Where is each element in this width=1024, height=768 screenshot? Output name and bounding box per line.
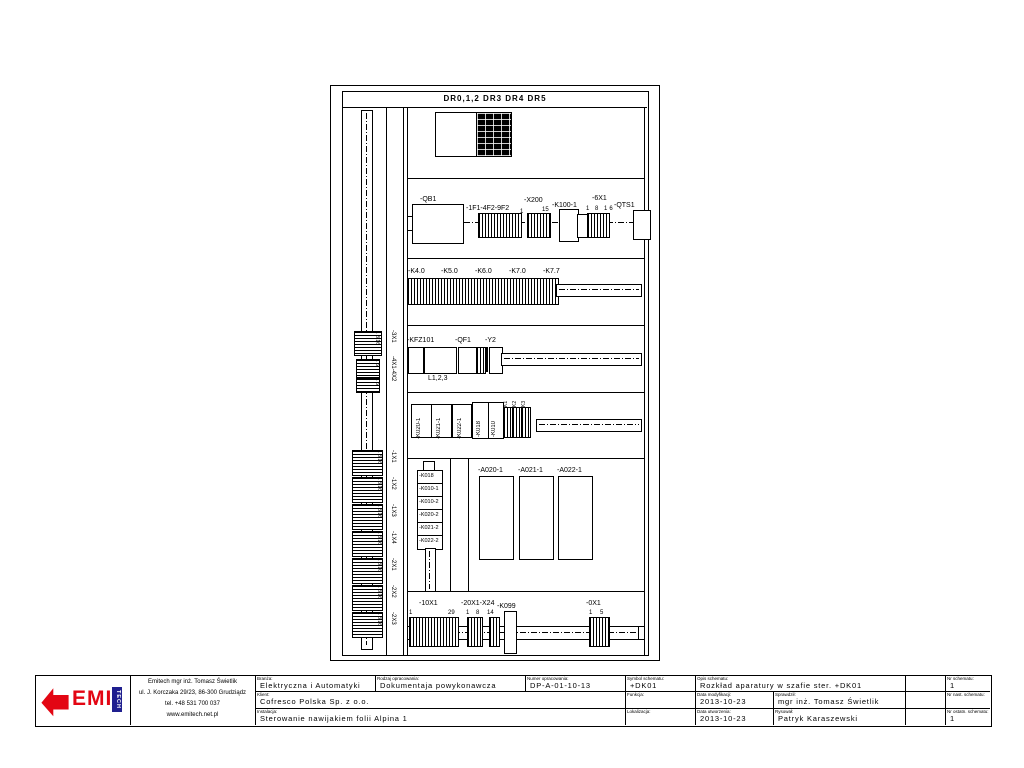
divider-line: [525, 675, 526, 691]
device-k100: [559, 209, 579, 242]
terminal-label-2x3: -2X3: [390, 612, 396, 638]
field-value-nr-ostatn-schematu: 1: [950, 715, 955, 723]
divider-line: [255, 708, 990, 709]
field-value-data-modyfikacji: 2013-10-23: [700, 698, 746, 706]
divider-line: [905, 675, 906, 725]
terminal-number: 1: [409, 610, 412, 616]
drive-label-a022-1: -A022-1: [557, 467, 582, 474]
device-label-x200: -X200: [524, 197, 543, 204]
divider-line: [407, 458, 644, 459]
terminal-number: 1: [466, 610, 469, 616]
emitech-logo-arrow-icon: [38, 684, 72, 718]
company-address: Emitech mgr inż. Tomasz Świetlik ul. J. …: [132, 677, 253, 721]
arrow-icon: [38, 684, 72, 718]
relay-small-3: [521, 407, 531, 438]
device-label-small-1: K1: [504, 395, 509, 407]
stack-label-k018: -K018: [419, 474, 434, 480]
stack-label-k020-2: -K020-2: [419, 513, 439, 519]
rail-header-label: DR0,1,2 DR3 DR4 DR5: [343, 95, 647, 103]
stack-label-k022-2: -K022-2: [419, 539, 439, 545]
divider-line: [407, 591, 644, 592]
device-label-fuses: -1F1-4F2-9F2: [466, 205, 509, 212]
rail-end-stub: [638, 626, 645, 640]
terminal-label-2x1: -2X1: [390, 558, 396, 584]
device-label-10x1: -10X1: [419, 600, 438, 607]
device-label-k021-1: -K021-1: [436, 393, 442, 439]
divider-line: [407, 258, 644, 259]
device-label-qf1: -QF1: [455, 337, 471, 344]
terminal-label-1x3: -1X3: [390, 504, 396, 530]
terminal-block-x200: [527, 213, 551, 238]
field-value-data-utworzenia: 2013-10-23: [700, 715, 746, 723]
divider-line: [407, 392, 644, 393]
mounting-rail: [536, 419, 642, 432]
device-label-6x1: -6X1: [592, 195, 607, 202]
divider-line: [945, 675, 946, 725]
terminal-block-x24: [489, 617, 500, 647]
device-label-k50: -K5.0: [441, 268, 458, 275]
terminal-block-10x1: [409, 617, 459, 647]
divider-line: [403, 107, 404, 655]
divider-line: [255, 675, 256, 725]
company-phone: tel. +48 531 700 037: [132, 699, 253, 710]
terminal-numbers: 1 8 16: [376, 612, 381, 637]
relay-bank: [407, 278, 559, 305]
rail-centerline: [504, 358, 639, 359]
device-label-k022-1: -K022-1: [457, 393, 463, 439]
rail-centerline: [429, 551, 430, 589]
device-label-k018: -K018: [476, 397, 482, 437]
mounting-rail: [501, 353, 642, 366]
stack-label-k010-1: -K010-1: [419, 487, 439, 493]
terminal-label-4x1-4x2: -4X1-4X2: [390, 356, 396, 428]
rail-centerline: [559, 289, 639, 290]
stack-label-k010-2: -K010-2: [419, 500, 439, 506]
device-label-kfz101: -KFZ101: [407, 337, 434, 344]
mounting-rail: [556, 284, 642, 297]
device-qb1: [412, 204, 464, 244]
terminal-label-1x1: -1X1: [390, 450, 396, 476]
terminal-numbers: 1 8 16: [376, 585, 381, 610]
divider-line: [343, 107, 647, 108]
field-value-rodzaj: Dokumentaja powykonawcza: [380, 682, 496, 690]
terminal-number: 1: [589, 610, 592, 616]
terminal-number: 14: [487, 610, 494, 616]
emitech-logo-tech-text: TECH: [112, 687, 122, 712]
device-k099: [504, 611, 517, 654]
divider-line: [386, 107, 387, 655]
field-value-nr-schematu: 1: [950, 682, 955, 690]
terminal-label-1x4: -1X4: [390, 531, 396, 557]
divider-line: [407, 107, 408, 655]
terminal-numbers: 1 6: [374, 378, 379, 391]
device-label-k020-1: -K020-1: [416, 393, 422, 439]
device-label-small-2: K2: [513, 395, 518, 407]
terminal-number: 5: [600, 610, 603, 616]
field-value-instalacja: Sterowanie nawijakiem folii Alpina 1: [260, 715, 408, 723]
company-website: www.emitech.net.pl: [132, 710, 253, 721]
field-label-lokalizacja: Lokalizacja:: [627, 710, 651, 715]
company-name: Emitech mgr inż. Tomasz Świetlik: [132, 677, 253, 688]
device-label-small-3: K3: [522, 395, 527, 407]
divider-line: [407, 325, 644, 326]
device-label-qb1: -QB1: [420, 196, 436, 203]
terminal-numbers: 1 8 16: [376, 504, 381, 529]
divider-line: [695, 675, 696, 725]
field-value-sprawdzil: mgr inż. Tomasz Świetlik: [778, 698, 879, 706]
device-label-k70: -K7.0: [509, 268, 526, 275]
field-value-rysowal: Patryk Karaszewski: [778, 715, 858, 723]
drive-a020-1: [479, 476, 514, 560]
field-value-branza: Elektryczna i Automatyki: [260, 682, 360, 690]
device-label-20x1-x24: -20X1-X24: [461, 600, 494, 607]
divider-line: [375, 675, 376, 691]
field-value-opis: Rozkład aparatury w szafie ster. +DK01: [700, 682, 862, 690]
terminal-block-6x1: [587, 213, 610, 238]
divider-line: [644, 107, 645, 655]
terminal-numbers: 1 8 16: [376, 558, 381, 583]
drive-a022-1: [558, 476, 593, 560]
field-value-symbol: +DK01: [630, 682, 657, 690]
din-rail-stub: [425, 548, 436, 592]
field-label-nr-nast-schematu: Nr nast. schematu:: [947, 693, 985, 698]
device-kfz101-b: [424, 347, 457, 374]
field-label-funkcja: Funkcja:: [627, 693, 644, 698]
relay-module-body: [435, 112, 478, 157]
terminal-number: 1: [520, 209, 523, 215]
device-label-k100: -K100-1: [552, 202, 577, 209]
terminal-numbers: 1 8 16: [586, 206, 615, 212]
terminal-numbers: 1 8 16: [376, 531, 381, 556]
device-label-k77: -K7.7: [543, 268, 560, 275]
terminal-label-2x2: -2X2: [390, 585, 396, 611]
device-qts1: [633, 210, 651, 240]
device-qf1: [458, 347, 477, 374]
emitech-logo-text: EMI: [72, 688, 112, 709]
terminal-label-1x2: -1X2: [390, 477, 396, 503]
device-label-k60: -K6.0: [475, 268, 492, 275]
device-kfz101-a: [408, 347, 424, 374]
divider-line: [450, 459, 451, 591]
divider-line: [130, 675, 131, 725]
device-label-k010: -K010: [491, 397, 497, 437]
device-label-y2: -Y2: [485, 337, 496, 344]
terminal-numbers: 1 8 16: [374, 331, 379, 355]
drive-label-a021-1: -A021-1: [518, 467, 543, 474]
relay-module-detail: [476, 112, 512, 157]
terminal-block-0x1: [589, 617, 610, 647]
terminal-number: 8: [476, 610, 479, 616]
drive-label-a020-1: -A020-1: [478, 467, 503, 474]
divider-line: [255, 691, 990, 692]
terminal-block-20x1: [467, 617, 483, 647]
terminal-numbers: 1 6: [374, 359, 379, 376]
divider-line: [468, 459, 469, 591]
terminal-numbers: 1 8 16: [376, 450, 381, 475]
terminal-number: 29: [448, 610, 455, 616]
rail-centerline: [539, 424, 639, 425]
device-label-k099: -K099: [497, 603, 516, 610]
device-label-k40: -K4.0: [408, 268, 425, 275]
fuse-group: [478, 213, 522, 238]
divider-line: [407, 178, 644, 179]
drive-a021-1: [519, 476, 554, 560]
divider-bar: [485, 347, 488, 372]
divider-line: [625, 675, 626, 725]
company-street: ul. J. Korczaka 29/23, 86-300 Grudziądz: [132, 688, 253, 699]
device-label-qts1: -QTS1: [614, 202, 635, 209]
field-value-klient: Cofresco Polska Sp. z o.o.: [260, 698, 369, 706]
device-label-0x1: -0X1: [586, 600, 601, 607]
device-sublabel-l123: L1,2,3: [428, 375, 447, 382]
stack-label-k021-2: -K021-2: [419, 526, 439, 532]
terminal-numbers: 1 8 16: [376, 477, 381, 502]
field-value-numer: DP-A-01-10-13: [530, 682, 591, 690]
